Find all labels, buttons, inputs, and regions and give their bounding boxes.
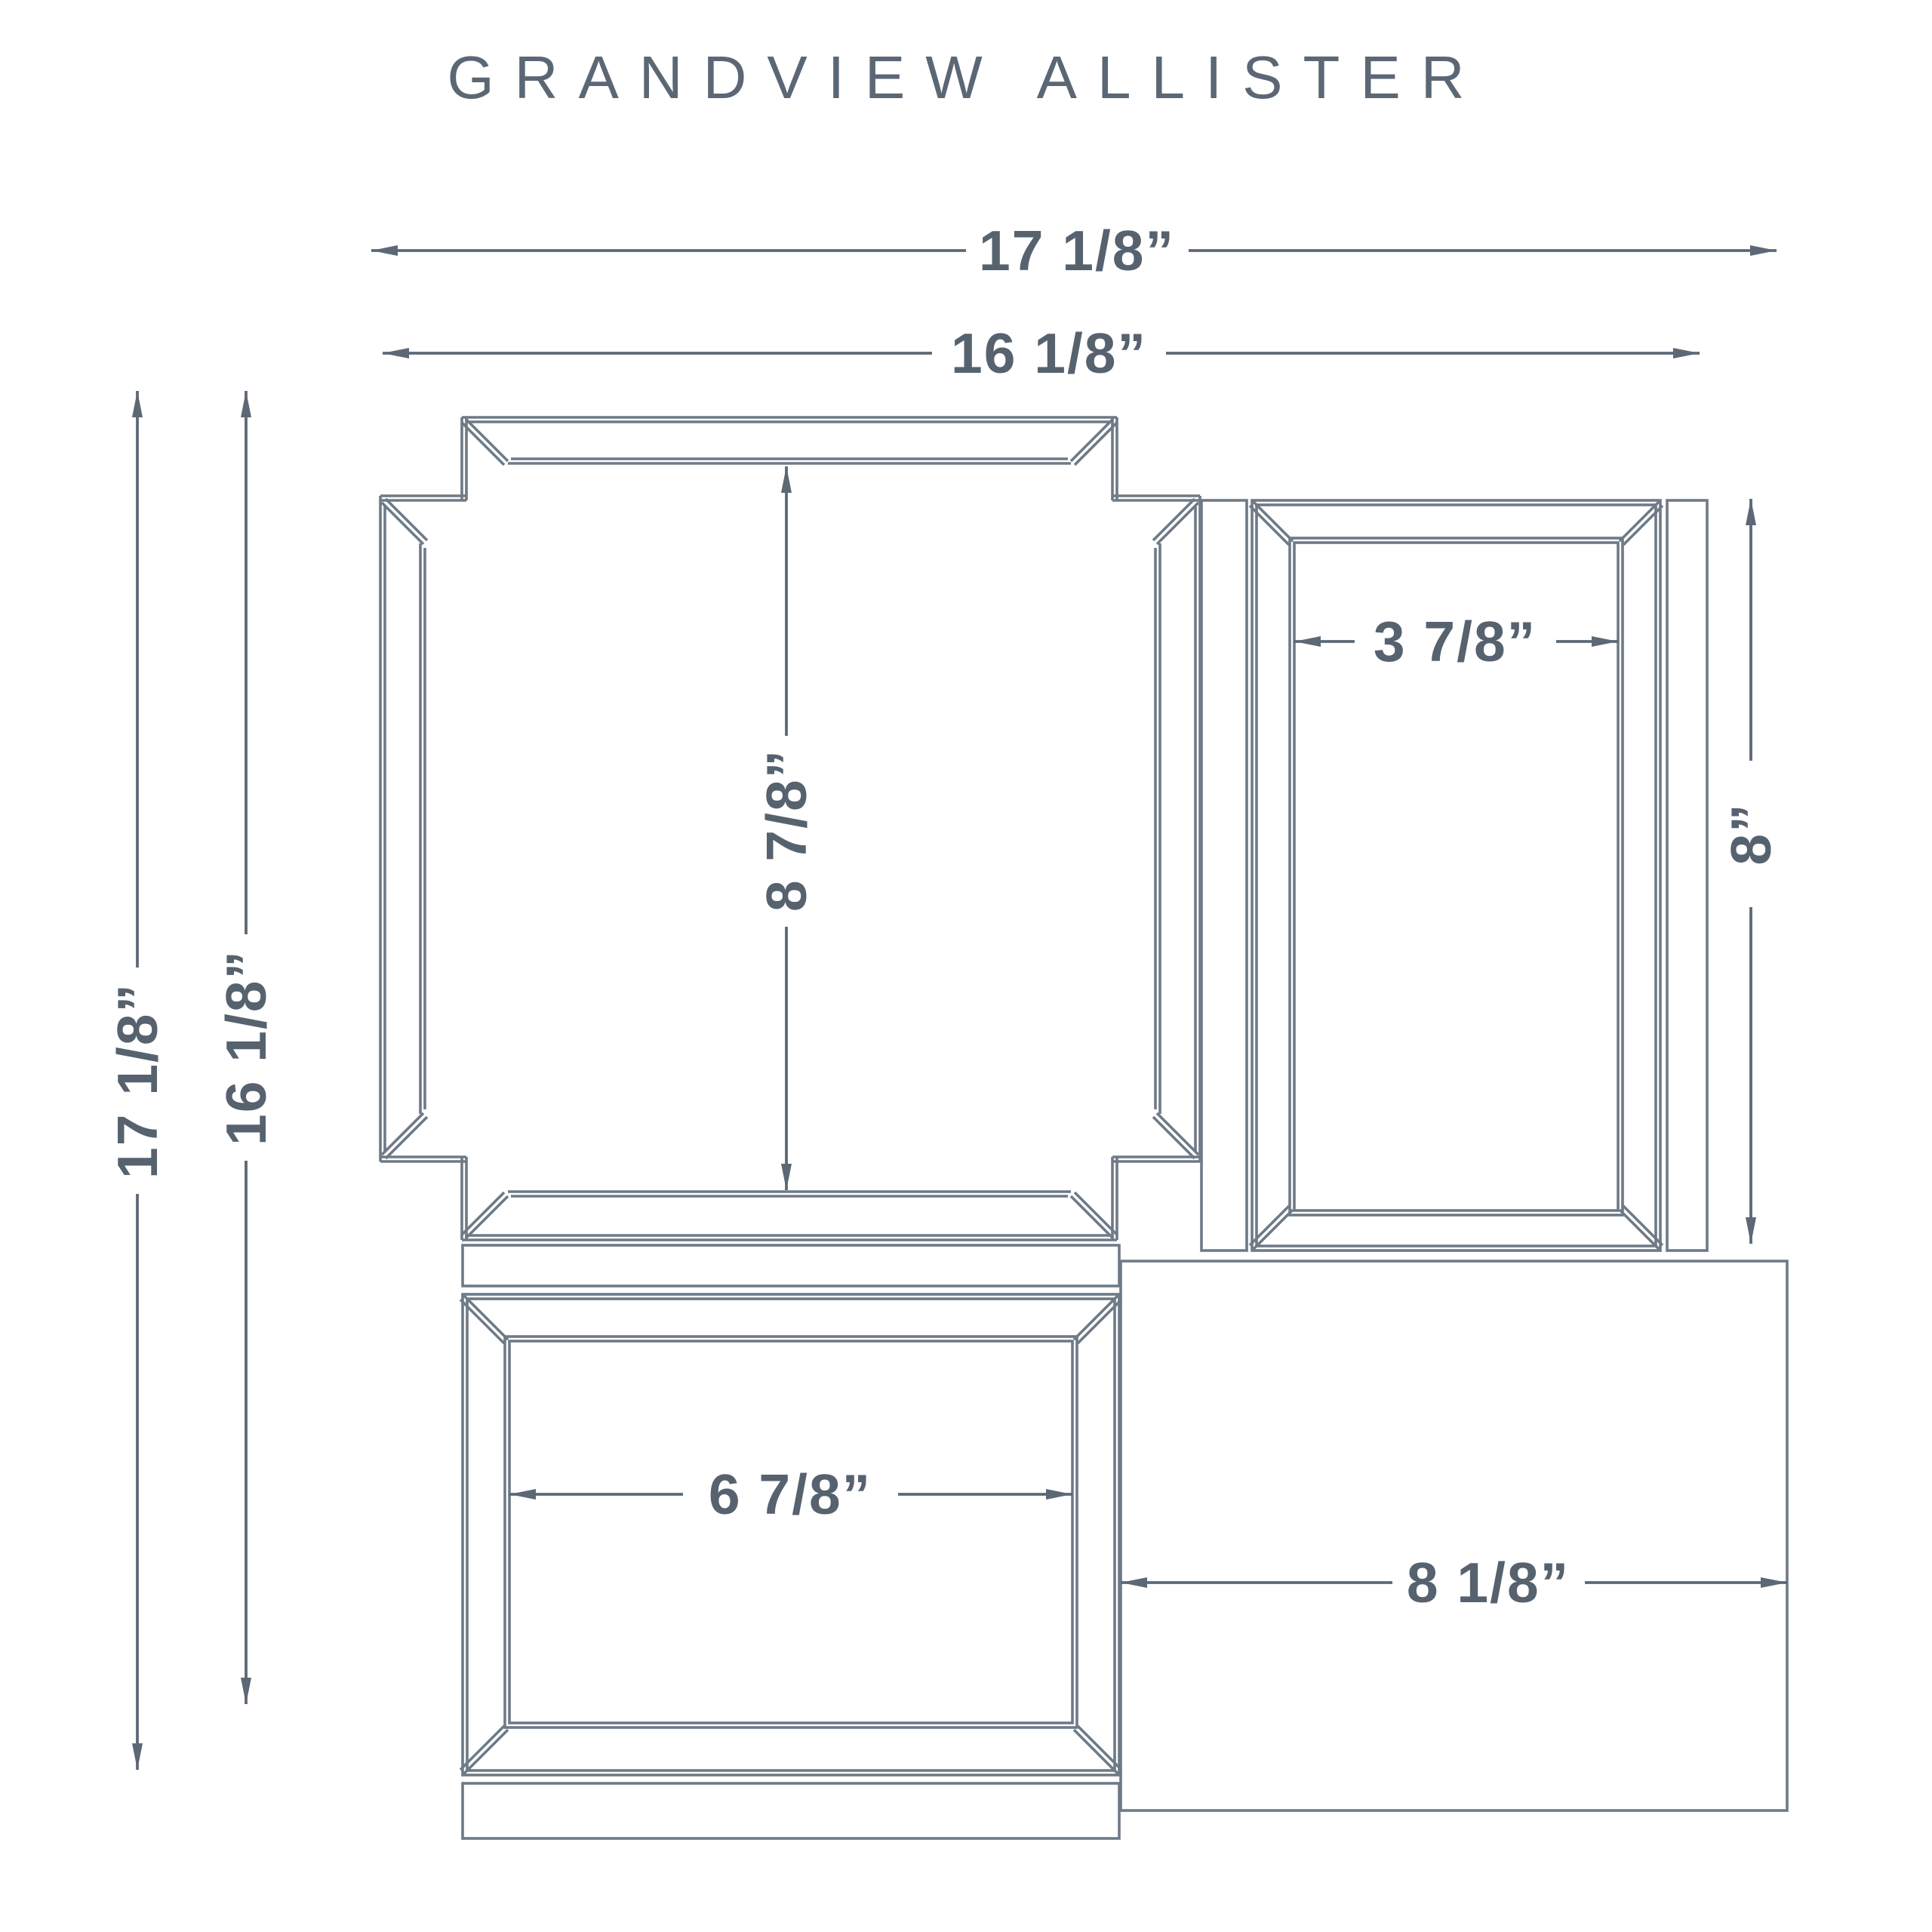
dim-overall-width: 17 1/8”	[371, 219, 1777, 282]
dim-inner-height: 16 1/8”	[214, 391, 278, 1704]
miter-line	[1071, 419, 1117, 465]
dim-label-bottom-mirror-width: 6 7/8”	[709, 1463, 872, 1526]
dim-label-overall-width: 17 1/8”	[979, 219, 1175, 282]
bottom-frame-outer-bevel	[467, 1299, 1115, 1770]
page-title: GRANDVIEW ALLISTER	[447, 44, 1484, 111]
corner-step	[1112, 417, 1200, 500]
dim-corner-panel-width: 8 1/8”	[1121, 1551, 1787, 1614]
dimension-diagram: GRANDVIEW ALLISTER 17 1/8” 16 1/8” 17 1/…	[0, 0, 1932, 1932]
corner-panel	[1121, 1261, 1787, 1810]
diagram-canvas: GRANDVIEW ALLISTER 17 1/8” 16 1/8” 17 1/…	[0, 0, 1932, 1932]
bottom-frame-outer	[463, 1294, 1119, 1775]
miter-line	[1153, 1113, 1198, 1158]
miter-line	[382, 1113, 427, 1158]
corner-step	[1112, 1157, 1200, 1240]
dim-label-corner-panel-width: 8 1/8”	[1407, 1551, 1570, 1614]
bottom-bottom-strip	[463, 1783, 1119, 1838]
miter-line	[382, 499, 427, 544]
dim-label-side-mirror-width: 3 7/8”	[1374, 610, 1537, 673]
dim-label-inner-height: 16 1/8”	[214, 949, 278, 1146]
dim-side-mirror-height: 8”	[1719, 499, 1783, 1244]
dim-label-main-opening-height: 8 7/8”	[755, 749, 818, 912]
miter-line	[462, 419, 508, 465]
dim-inner-width: 16 1/8”	[383, 321, 1700, 385]
miter-line	[1071, 1192, 1117, 1238]
dim-overall-height: 17 1/8”	[106, 391, 169, 1770]
dim-label-side-mirror-height: 8”	[1719, 802, 1783, 865]
miter-line	[1153, 499, 1198, 544]
bottom-frame-inner	[509, 1341, 1072, 1723]
dim-main-opening-height: 8 7/8”	[755, 466, 818, 1190]
dim-label-overall-height: 17 1/8”	[106, 983, 169, 1179]
corner-step	[380, 1157, 466, 1240]
miter-line	[462, 1192, 508, 1238]
dim-label-inner-width: 16 1/8”	[951, 321, 1147, 385]
side-left-strip	[1201, 500, 1247, 1251]
bottom-mirror-frame	[460, 1245, 1121, 1838]
bottom-frame-inner-bevel	[505, 1337, 1077, 1727]
dim-bottom-mirror-width: 6 7/8”	[509, 1463, 1072, 1526]
bottom-top-strip	[463, 1245, 1119, 1286]
side-right-strip	[1667, 500, 1707, 1251]
corner-panel-outline	[1121, 1261, 1787, 1810]
corner-step	[380, 417, 466, 500]
dim-side-mirror-width: 3 7/8”	[1294, 610, 1618, 673]
